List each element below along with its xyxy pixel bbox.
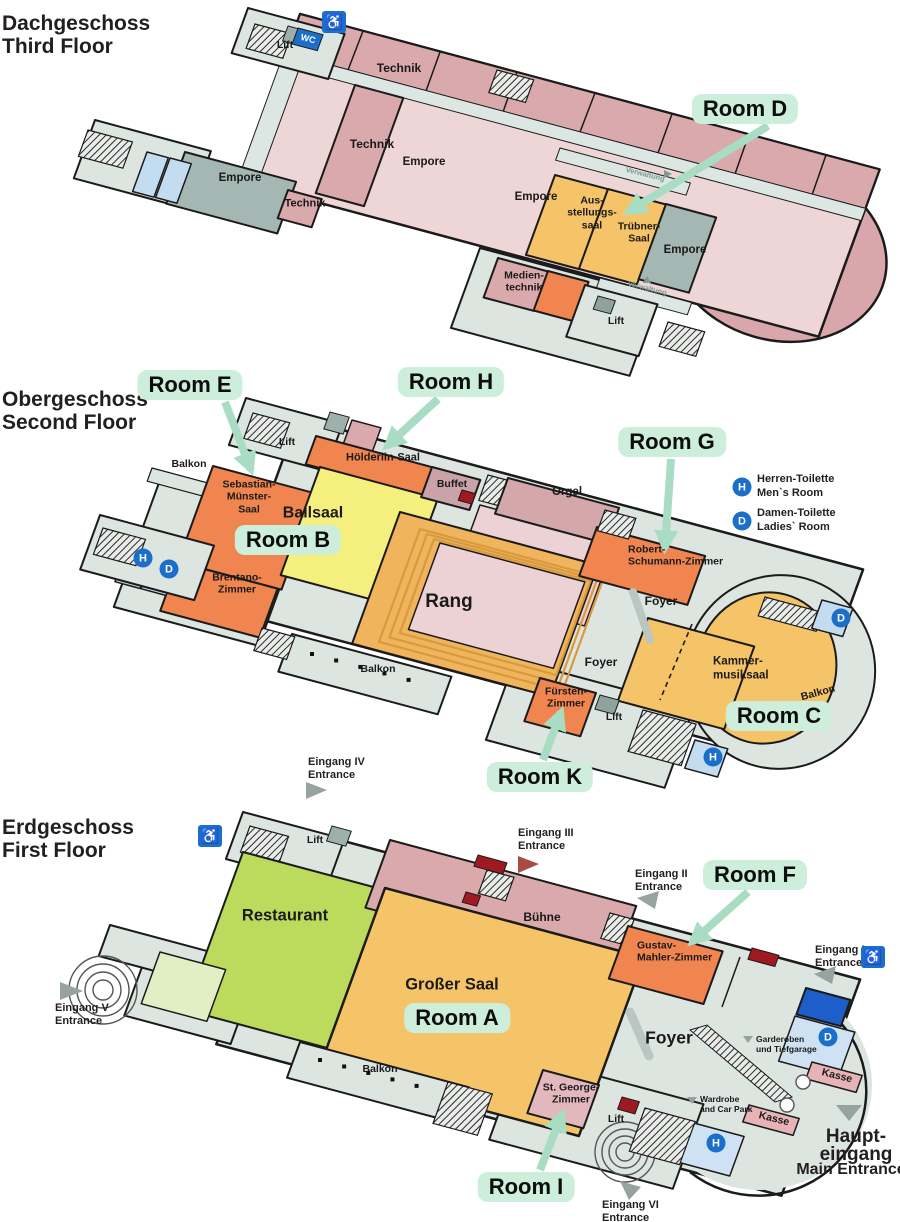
entrance-label-eingang-1: Eingang IEntrance	[815, 944, 865, 969]
balkon-dot	[407, 678, 411, 682]
room-label-f3-lift_top: Lift	[277, 39, 293, 51]
room-label-f3-ausstellung: Aus- stellungs- saal	[567, 194, 617, 231]
room-label-f2-lift_top: Lift	[279, 436, 295, 448]
ladies-room-icon-f1: D	[819, 1028, 838, 1047]
room-label-f2-lift_bottom: Lift	[606, 711, 622, 723]
entrance-steps	[796, 1075, 810, 1089]
badge-room-h: Room H	[398, 367, 504, 397]
mens-room-icon-f2-bottom: H	[704, 748, 723, 767]
balkon-dot	[318, 1058, 322, 1062]
room-label-f1-st_george: St. George- Zimmer	[543, 1082, 600, 1107]
mens-room-icon-f1: H	[707, 1134, 726, 1153]
entrance-name-en: Entrance	[815, 957, 862, 969]
entrance-name-en: Entrance	[635, 881, 682, 893]
d-glyph: D	[837, 612, 845, 624]
entrance-label-eingang-5: Eingang VEntrance	[55, 1002, 109, 1027]
entrance-name-en: Entrance	[518, 840, 565, 852]
room-label-f3-empore_left: Empore	[219, 172, 262, 186]
room-label-f2-rang: Rang	[425, 591, 473, 613]
room-label-f2-orgel: Orgel	[552, 486, 582, 500]
balkon-dot	[310, 652, 314, 656]
f2-stairs-balkon	[254, 628, 295, 659]
room-label-f2-brentano: Brentano- Zimmer	[212, 572, 262, 597]
ladies-room-icon-f2-left: D	[160, 560, 179, 579]
room-label-f2-ballsaal: Ballsaal	[283, 505, 343, 524]
room-label-f1-restaurant: Restaurant	[242, 906, 328, 925]
entrance-name-de: Eingang V	[55, 1002, 109, 1014]
room-label-f2-robert: Robert- Schumann-Zimmer	[628, 544, 723, 569]
entrance-name-de: Eingang VI	[602, 1199, 659, 1211]
room-label-f2-fuersten: Fürsten- Zimmer	[545, 686, 587, 711]
room-label-f1-wardrobe: Wardrobe and Car Park	[700, 1094, 752, 1114]
room-label-f1-garderoben: Garderoben und Tiefgarage	[756, 1034, 817, 1054]
badge-room-i: Room I	[478, 1172, 575, 1202]
h-glyph: H	[712, 1137, 720, 1149]
room-label-f1-buehne: Bühne	[523, 910, 560, 924]
badge-room-c: Room C	[726, 701, 832, 731]
title-first-floor: ErdgeschossFirst Floor	[2, 816, 134, 862]
legend-mens-icon: H	[733, 478, 752, 497]
main-entrance-label-de: Haupt- eingang	[820, 1128, 893, 1164]
legend-ladies-label: Damen-Toilette Ladies` Room	[757, 507, 836, 534]
room-label-f3-technik_mid: Technik	[350, 137, 394, 151]
entrance-name-de: Eingang II	[635, 868, 688, 880]
room-label-f3-empore_b: Empore	[515, 191, 558, 205]
room-label-f2-hoelderlin: Hölderlin-Saal	[346, 452, 420, 465]
legend-ladies-icon: D	[733, 512, 752, 531]
room-label-f3-empore_right: Empore	[664, 244, 707, 258]
entrance-label-eingang-6: Eingang VIEntrance	[602, 1199, 659, 1222]
room-label-f3-truebner: Trübner- Saal	[618, 221, 661, 246]
room-label-f2-kammer: Kammer- musiksaal	[713, 655, 769, 682]
d-glyph: D	[165, 563, 173, 575]
entrance-arrow-eingang-5	[60, 982, 83, 1000]
room-label-f2-balkon_top: Balkon	[171, 458, 206, 470]
entrance-steps	[93, 980, 113, 1000]
entrance-name-en: Entrance	[308, 769, 355, 781]
mens-room-icon-f2-left: H	[134, 549, 153, 568]
entrance-label-eingang-3: Eingang IIIEntrance	[518, 827, 574, 852]
wheelchair-icon-f1: ♿	[198, 825, 222, 847]
room-label-f3-medientechnik: Medien- technik	[504, 270, 544, 295]
wheelchair-glyph: ♿	[201, 827, 220, 845]
room-label-f1-grosser_saal: Großer Saal	[405, 975, 499, 994]
f3-stairs-bottom	[659, 322, 705, 356]
balkon-dot	[415, 1084, 419, 1088]
room-label-f2-sebastian: Sebastian- Münster- Saal	[222, 478, 275, 515]
entrance-arrow-eingang-6	[620, 1181, 641, 1200]
badge-room-b: Room B	[235, 525, 341, 555]
entrance-arrow-eingang-2	[637, 891, 659, 909]
entrance-name-de: Eingang I	[815, 944, 865, 956]
d-glyph: D	[824, 1031, 832, 1043]
ladies-room-icon-f2-right: D	[832, 609, 851, 628]
room-label-f2-foyer_mid: Foyer	[585, 655, 618, 669]
room-label-f3-technik_top: Technik	[377, 61, 421, 75]
room-label-f2-foyer_top: Foyer	[645, 594, 678, 608]
badge-room-a: Room A	[404, 1003, 510, 1033]
entrance-name-en: Entrance	[602, 1212, 649, 1222]
entrance-label-eingang-4: Eingang IVEntrance	[308, 756, 365, 781]
entrance-name-de: Eingang IV	[308, 756, 365, 768]
wheelchair-glyph: ♿	[864, 948, 883, 966]
wheelchair-glyph: ♿	[325, 13, 344, 31]
room-label-f1-lift_top: Lift	[307, 834, 323, 846]
title-third-floor: DachgeschossThird Floor	[2, 12, 150, 58]
floorplan-page: DachgeschossThird Floor ObergeschossSeco…	[0, 0, 900, 1222]
entrance-arrow-eingang-3	[518, 856, 539, 873]
room-label-f2-balkon_bottom: Balkon	[360, 663, 395, 675]
room-label-f2-buffet: Buffet	[437, 478, 467, 490]
main-entrance-label-en: Main Entrance	[796, 1161, 900, 1179]
balkon-dot	[390, 1077, 394, 1081]
room-label-f3-empore_a: Empore	[403, 156, 446, 170]
room-label-f3-lift_bottom: Lift	[608, 315, 624, 327]
room-label-f1-gustav: Gustav- Mahler-Zimmer	[637, 940, 712, 965]
badge-room-k: Room K	[487, 762, 593, 792]
wheelchair-icon-eingang-1: ♿	[861, 946, 885, 968]
entrance-label-eingang-2: Eingang IIEntrance	[635, 868, 688, 893]
entrance-name-de: Eingang III	[518, 827, 574, 839]
room-badge-arrow	[387, 399, 438, 446]
entrance-steps	[780, 1098, 794, 1112]
legend-mens-label: Herren-Toilette Men`s Room	[757, 473, 834, 500]
room-label-f3-technik_small: Technik	[285, 198, 326, 211]
h-glyph: H	[139, 552, 147, 564]
balkon-dot	[342, 1064, 346, 1068]
balkon-dot	[334, 658, 338, 662]
entrance-arrow-eingang-4	[306, 782, 327, 799]
room-label-f1-lift_bottom: Lift	[608, 1113, 624, 1125]
room-label-f1-balkon: Balkon	[362, 1063, 397, 1075]
entrance-name-en: Entrance	[55, 1015, 102, 1027]
room-label-f1-foyer: Foyer	[645, 1028, 693, 1049]
badge-room-g: Room G	[618, 427, 726, 457]
room-badge-arrow	[692, 892, 748, 942]
badge-room-f: Room F	[703, 860, 807, 890]
wheelchair-icon-f3: ♿	[322, 11, 346, 33]
badge-room-d: Room D	[692, 94, 798, 124]
h-glyph: H	[709, 751, 717, 763]
badge-room-e: Room E	[137, 370, 242, 400]
title-second-floor: ObergeschossSecond Floor	[2, 388, 148, 434]
